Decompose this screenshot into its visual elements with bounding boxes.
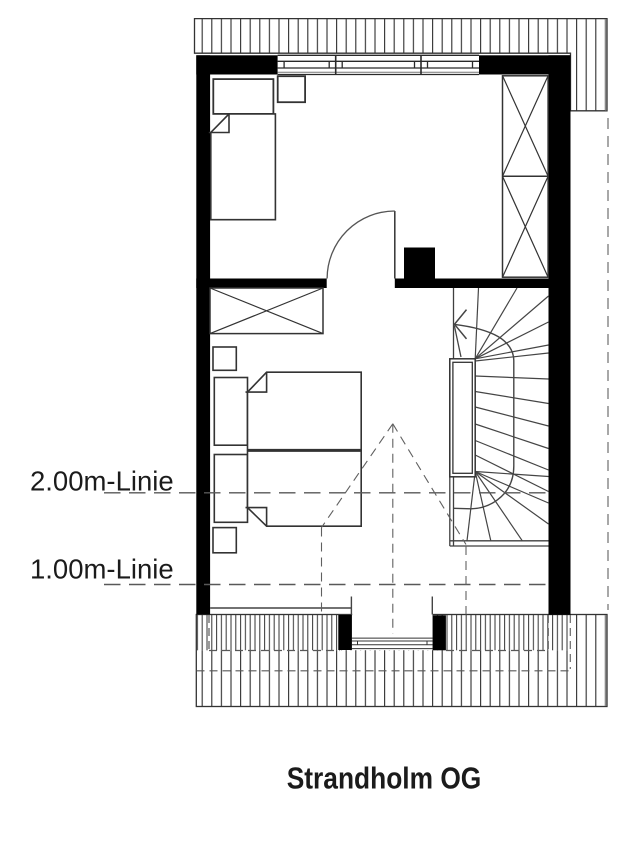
svg-text:2.00m-Linie: 2.00m-Linie [30, 466, 174, 497]
svg-text:1.00m-Linie: 1.00m-Linie [30, 554, 174, 585]
svg-text:Strandholm OG: Strandholm OG [287, 762, 482, 796]
